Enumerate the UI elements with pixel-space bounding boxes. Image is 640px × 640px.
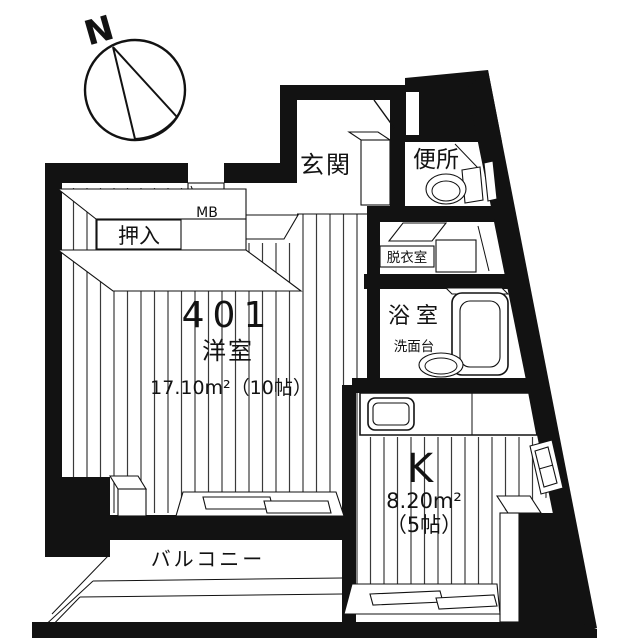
wall-washroom-left [367, 206, 380, 392]
wall-dressing-bath [364, 274, 508, 289]
wall-entrance-toilet [390, 85, 405, 210]
meter-box-wall-gap [188, 163, 224, 183]
bathtub-inner [460, 301, 500, 367]
entrance-label: 玄関 [300, 151, 352, 179]
main-window-pane-2 [264, 501, 331, 513]
kitchen-window-pane-2 [436, 595, 497, 609]
balcony-label: バルコニー [151, 547, 266, 571]
main-room-area: 17.10m²（10帖） [150, 377, 312, 399]
floor-plan-drawing: N 玄関 便所 MB 押入 脱衣室 浴室 洗面台 401 洋室 17.10m²（… [0, 0, 640, 640]
wall-bottom-band [32, 622, 597, 638]
main-room-number: 401 [182, 295, 275, 336]
wall-bath-kitchen [352, 378, 529, 393]
kitchen-area: 8.20m² [386, 489, 462, 513]
kitchen-label: K [407, 446, 435, 492]
washing-machine [436, 240, 476, 272]
closet-label: 押入 [118, 224, 160, 248]
kitchen-step-column [500, 513, 519, 622]
floor-plan-page: N 玄関 便所 MB 押入 脱衣室 浴室 洗面台 401 洋室 17.10m²（… [0, 0, 640, 640]
main-window-pane-1 [203, 497, 273, 509]
washstand-label: 洗面台 [394, 339, 435, 355]
toilet-label: 便所 [413, 147, 459, 173]
wall-entrance-top [280, 85, 408, 100]
kitchen-tatami: （5帖） [386, 513, 462, 537]
shoe-cabinet [361, 140, 390, 205]
wall-toilet-dressing [367, 206, 495, 222]
main-room-type: 洋室 [202, 337, 254, 365]
kitchen-sink-inner [373, 403, 409, 425]
kitchen-window-pane-1 [370, 591, 443, 605]
toilet-door-opening [406, 92, 419, 135]
meter-box-label: MB [196, 205, 218, 221]
balcony-step-front [118, 489, 146, 516]
wall-main-room-bottom [90, 515, 356, 540]
bathroom-label: 浴室 [388, 304, 444, 329]
wall-top-left [45, 163, 297, 183]
dressing-room-label: 脱衣室 [387, 249, 428, 266]
